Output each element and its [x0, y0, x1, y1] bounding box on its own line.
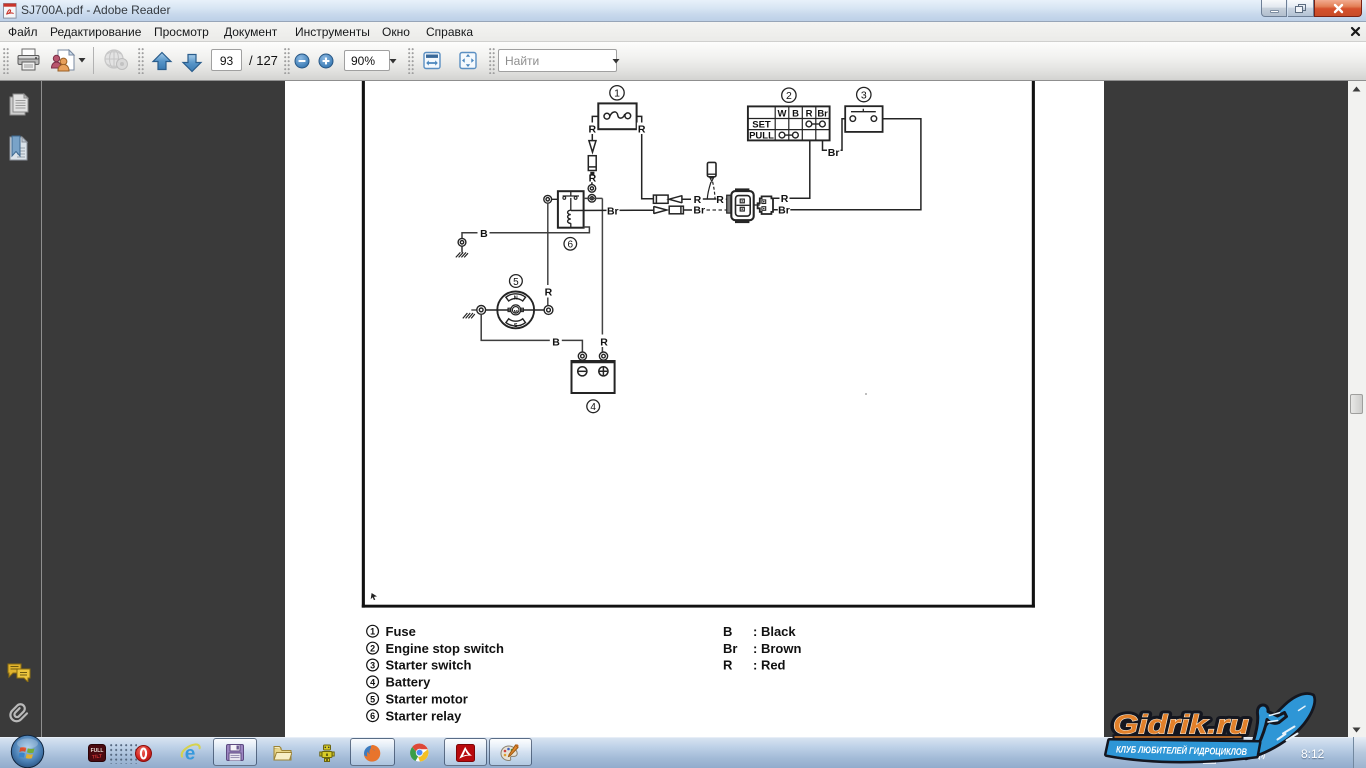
svg-text:3: 3 [861, 89, 867, 101]
svg-text:5: 5 [370, 694, 375, 704]
svg-text:B: B [552, 336, 560, 348]
svg-text:B: B [792, 108, 799, 119]
svg-text:SET: SET [752, 120, 771, 131]
svg-text:6: 6 [568, 240, 574, 251]
svg-text:R: R [545, 286, 553, 298]
svg-text:B: B [723, 624, 732, 639]
svg-text:Br: Br [828, 147, 840, 159]
svg-text:Br: Br [778, 205, 790, 217]
svg-text:: Red: : Red [753, 658, 786, 673]
svg-text:Engine stop switch: Engine stop switch [386, 641, 505, 656]
svg-text:R: R [638, 124, 646, 136]
svg-text:R: R [716, 194, 724, 206]
svg-text:Starter switch: Starter switch [386, 658, 472, 673]
svg-text:R: R [589, 124, 597, 136]
svg-text:R: R [723, 658, 733, 673]
svg-text:4: 4 [370, 677, 375, 687]
svg-text:Fuse: Fuse [386, 624, 416, 639]
svg-text:1: 1 [370, 627, 375, 637]
svg-text:R: R [600, 336, 608, 348]
svg-text:S: S [514, 323, 518, 329]
svg-text:1: 1 [614, 88, 620, 100]
svg-text:B: B [480, 228, 488, 240]
svg-text:Starter motor: Starter motor [386, 692, 468, 707]
svg-text:6: 6 [370, 711, 375, 721]
svg-text:Br: Br [607, 206, 619, 218]
svg-text:2: 2 [786, 90, 792, 102]
svg-text:Battery: Battery [386, 675, 432, 690]
svg-text:: Brown: : Brown [753, 641, 801, 656]
svg-text:4: 4 [590, 402, 596, 413]
svg-text:Br: Br [693, 205, 705, 217]
svg-text:M: M [514, 309, 518, 315]
svg-text:5: 5 [513, 277, 519, 288]
svg-text:Starter relay: Starter relay [386, 708, 463, 723]
svg-text:R: R [806, 108, 813, 119]
svg-text:W: W [778, 108, 787, 119]
svg-text:PULL: PULL [749, 131, 774, 142]
svg-text:Br: Br [817, 108, 828, 119]
svg-text:3: 3 [370, 661, 375, 671]
svg-text:Br: Br [723, 641, 737, 656]
svg-text:R: R [781, 193, 789, 205]
svg-text:N: N [514, 295, 518, 301]
svg-text:: Black: : Black [753, 624, 796, 639]
svg-text:КЛУБ ЛЮБИТЕЛЕЙ ГИДРОЦИКЛОВ: КЛУБ ЛЮБИТЕЛЕЙ ГИДРОЦИКЛОВ [1116, 744, 1247, 759]
svg-text:2: 2 [370, 644, 375, 654]
